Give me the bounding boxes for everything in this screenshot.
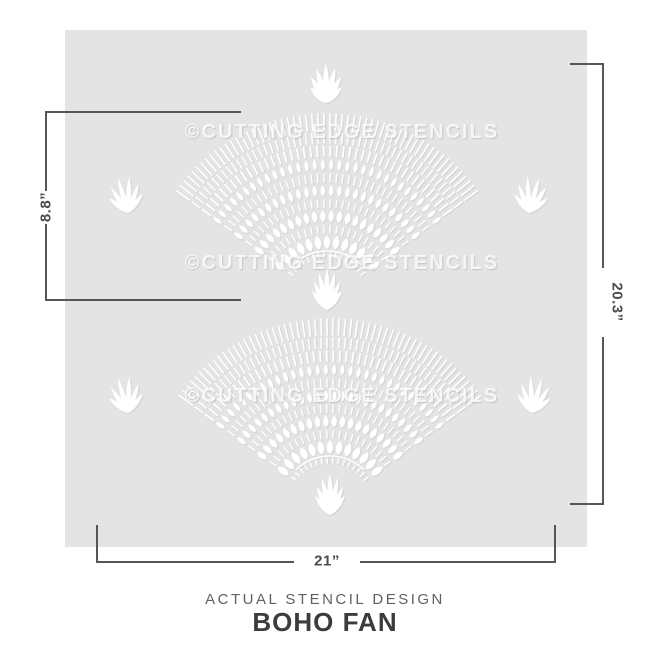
- watermark-top: ©CUTTING EDGE STENCILS: [162, 121, 522, 143]
- watermark-middle: ©CUTTING EDGE STENCILS: [162, 252, 522, 274]
- dim-inner-height-tick-bottom: [45, 299, 241, 301]
- dim-width-line-right: [360, 561, 556, 563]
- dim-total-height-tick-top: [570, 63, 604, 65]
- dim-inner-height-tick-top: [45, 111, 241, 113]
- dim-total-height-line-upper: [602, 63, 604, 268]
- dim-width-tick-right: [554, 525, 556, 563]
- product-diagram: ©CUTTING EDGE STENCILS ©CUTTING EDGE STE…: [0, 0, 650, 650]
- dim-total-height-label: 20.3”: [609, 282, 626, 321]
- watermark-bottom: ©CUTTING EDGE STENCILS: [162, 385, 522, 407]
- dim-total-height-line-lower: [602, 337, 604, 505]
- product-title: BOHO FAN: [0, 607, 650, 638]
- dim-width-tick-left: [96, 525, 98, 563]
- dim-width-line-left: [96, 561, 294, 563]
- dim-inner-height-label: 8.8”: [38, 192, 55, 222]
- dim-width-label: 21”: [314, 553, 340, 570]
- dim-total-height-tick-bottom: [570, 503, 604, 505]
- dim-inner-height-line-upper: [45, 111, 47, 191]
- dim-inner-height-line-lower: [45, 224, 47, 301]
- caption-subtitle: ACTUAL STENCIL DESIGN: [0, 591, 650, 608]
